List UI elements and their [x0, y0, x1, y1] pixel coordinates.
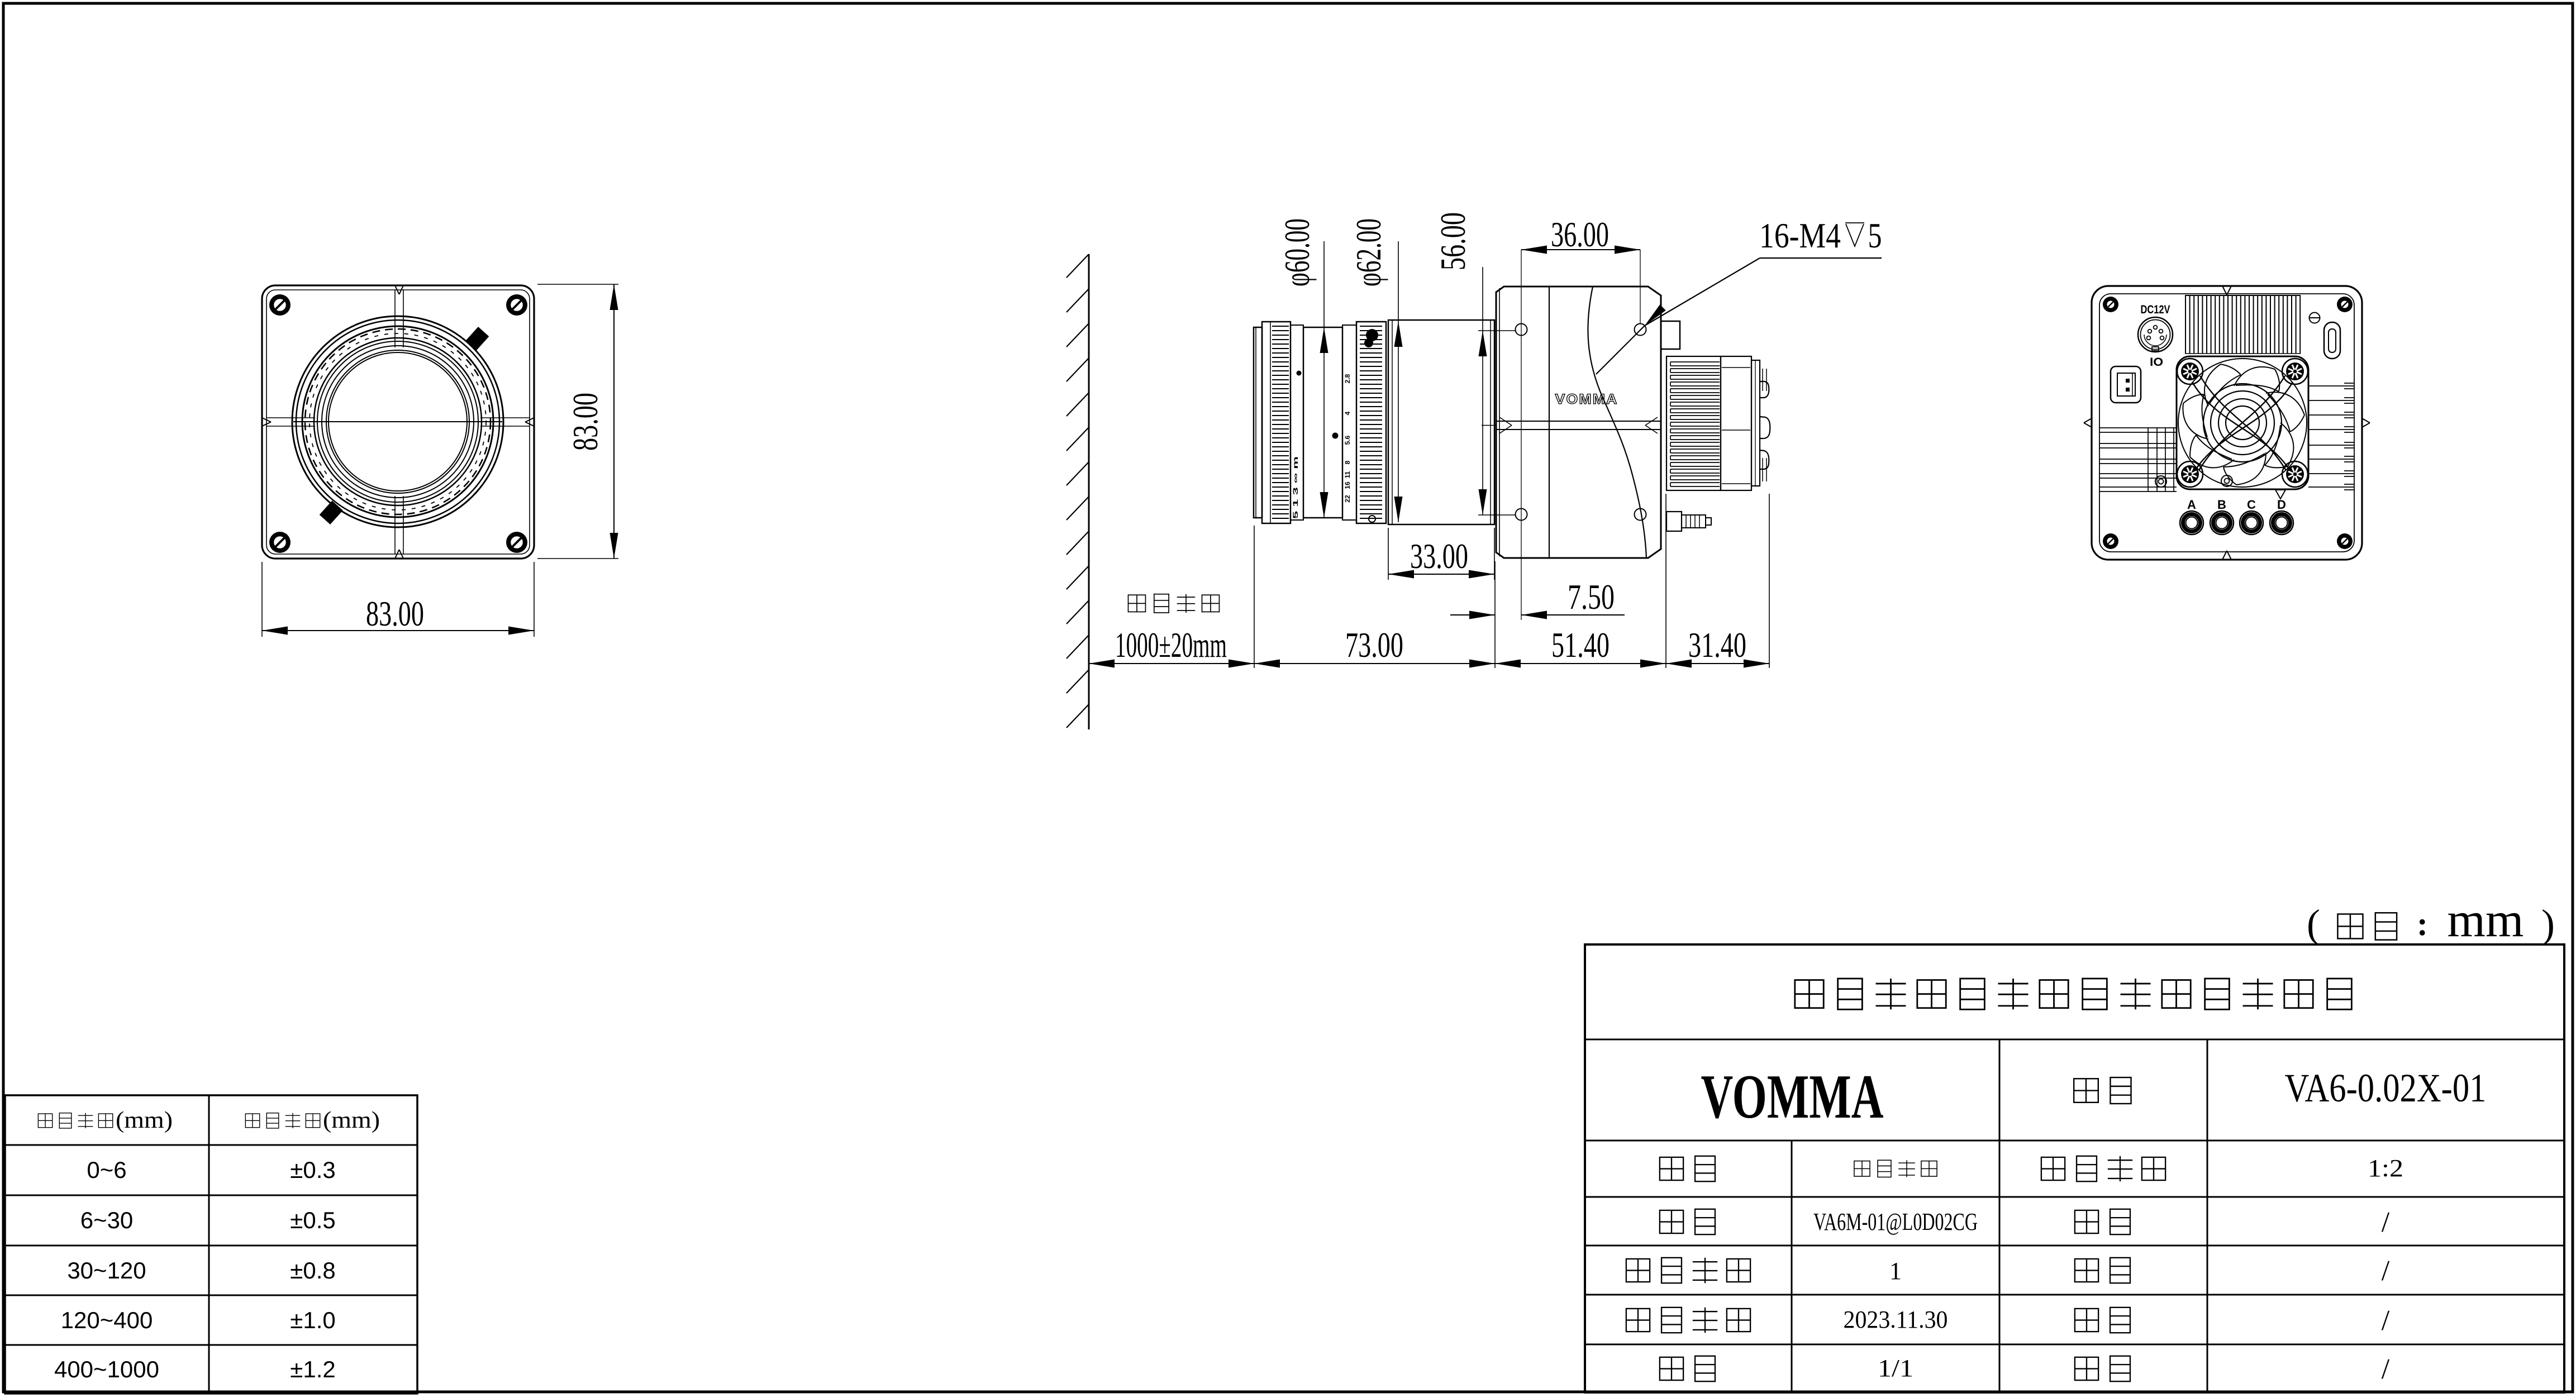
svg-text:1/1: 1/1 [1878, 1354, 1913, 1382]
svg-text:mm: mm [2448, 893, 2524, 947]
svg-text:±0.8: ±0.8 [290, 1257, 335, 1284]
svg-text:16: 16 [1344, 481, 1351, 489]
svg-text:/: / [2382, 1206, 2390, 1238]
svg-text:8: 8 [1344, 460, 1351, 464]
svg-text:2023.11.30: 2023.11.30 [1844, 1306, 1948, 1333]
svg-text:400~1000: 400~1000 [54, 1356, 159, 1382]
svg-text:/: / [2382, 1305, 2390, 1337]
svg-text:120~400: 120~400 [61, 1307, 153, 1333]
svg-text:φ62.00: φ62.00 [1349, 218, 1388, 287]
svg-text:5.6: 5.6 [1344, 435, 1351, 445]
svg-text:D: D [2277, 498, 2286, 512]
svg-text:83.00: 83.00 [565, 393, 605, 451]
svg-text:IO: IO [2150, 356, 2163, 369]
svg-text:VOMMA: VOMMA [1555, 392, 1618, 407]
svg-text:36.00: 36.00 [1551, 214, 1609, 254]
svg-text:16-M4: 16-M4 [1759, 216, 1841, 255]
svg-text:(mm): (mm) [323, 1108, 380, 1133]
svg-text:83.00: 83.00 [366, 594, 424, 633]
svg-text:VA6M-01@L0D02CG: VA6M-01@L0D02CG [1813, 1208, 1978, 1235]
svg-text:A: A [2187, 498, 2196, 512]
svg-text::: : [2417, 905, 2428, 942]
svg-text:51.40: 51.40 [1551, 625, 1610, 665]
svg-text:6~30: 6~30 [80, 1207, 134, 1233]
svg-text:1: 1 [1889, 1257, 1902, 1285]
svg-text:): ) [2541, 901, 2555, 946]
svg-text:30~120: 30~120 [67, 1257, 146, 1284]
svg-text:(: ( [2307, 901, 2320, 946]
svg-text:φ60.00: φ60.00 [1277, 218, 1317, 287]
svg-text:1:2: 1:2 [2368, 1154, 2403, 1182]
svg-text:7.50: 7.50 [1568, 577, 1615, 617]
svg-text:(mm): (mm) [116, 1108, 173, 1133]
svg-text:22: 22 [1344, 495, 1351, 503]
svg-text:31.40: 31.40 [1688, 625, 1746, 665]
svg-text:33.00: 33.00 [1410, 536, 1468, 576]
svg-text:B: B [2217, 498, 2226, 512]
svg-text:VA6-0.02X-01: VA6-0.02X-01 [2285, 1066, 2487, 1110]
svg-text:73.00: 73.00 [1345, 625, 1403, 665]
svg-text:/: / [2382, 1353, 2390, 1385]
svg-text:11: 11 [1344, 471, 1351, 478]
svg-text:2.8: 2.8 [1344, 374, 1351, 383]
svg-text:56.00: 56.00 [1433, 212, 1473, 270]
svg-text:±0.5: ±0.5 [290, 1207, 335, 1233]
svg-text:±0.3: ±0.3 [290, 1157, 335, 1183]
svg-text:±1.2: ±1.2 [290, 1356, 335, 1382]
svg-text:0~6: 0~6 [87, 1157, 126, 1183]
svg-text:5: 5 [1868, 216, 1882, 255]
svg-text:DC12V: DC12V [2141, 303, 2170, 316]
svg-text:5 1 3 ∞ m: 5 1 3 ∞ m [1292, 456, 1299, 519]
svg-text:VOMMA: VOMMA [1701, 1062, 1884, 1132]
svg-text:±1.0: ±1.0 [290, 1307, 335, 1333]
svg-text:1000±20mm: 1000±20mm [1115, 625, 1227, 665]
svg-text:C: C [2247, 498, 2256, 512]
svg-text:4: 4 [1344, 411, 1351, 415]
svg-text:/: / [2382, 1255, 2390, 1287]
